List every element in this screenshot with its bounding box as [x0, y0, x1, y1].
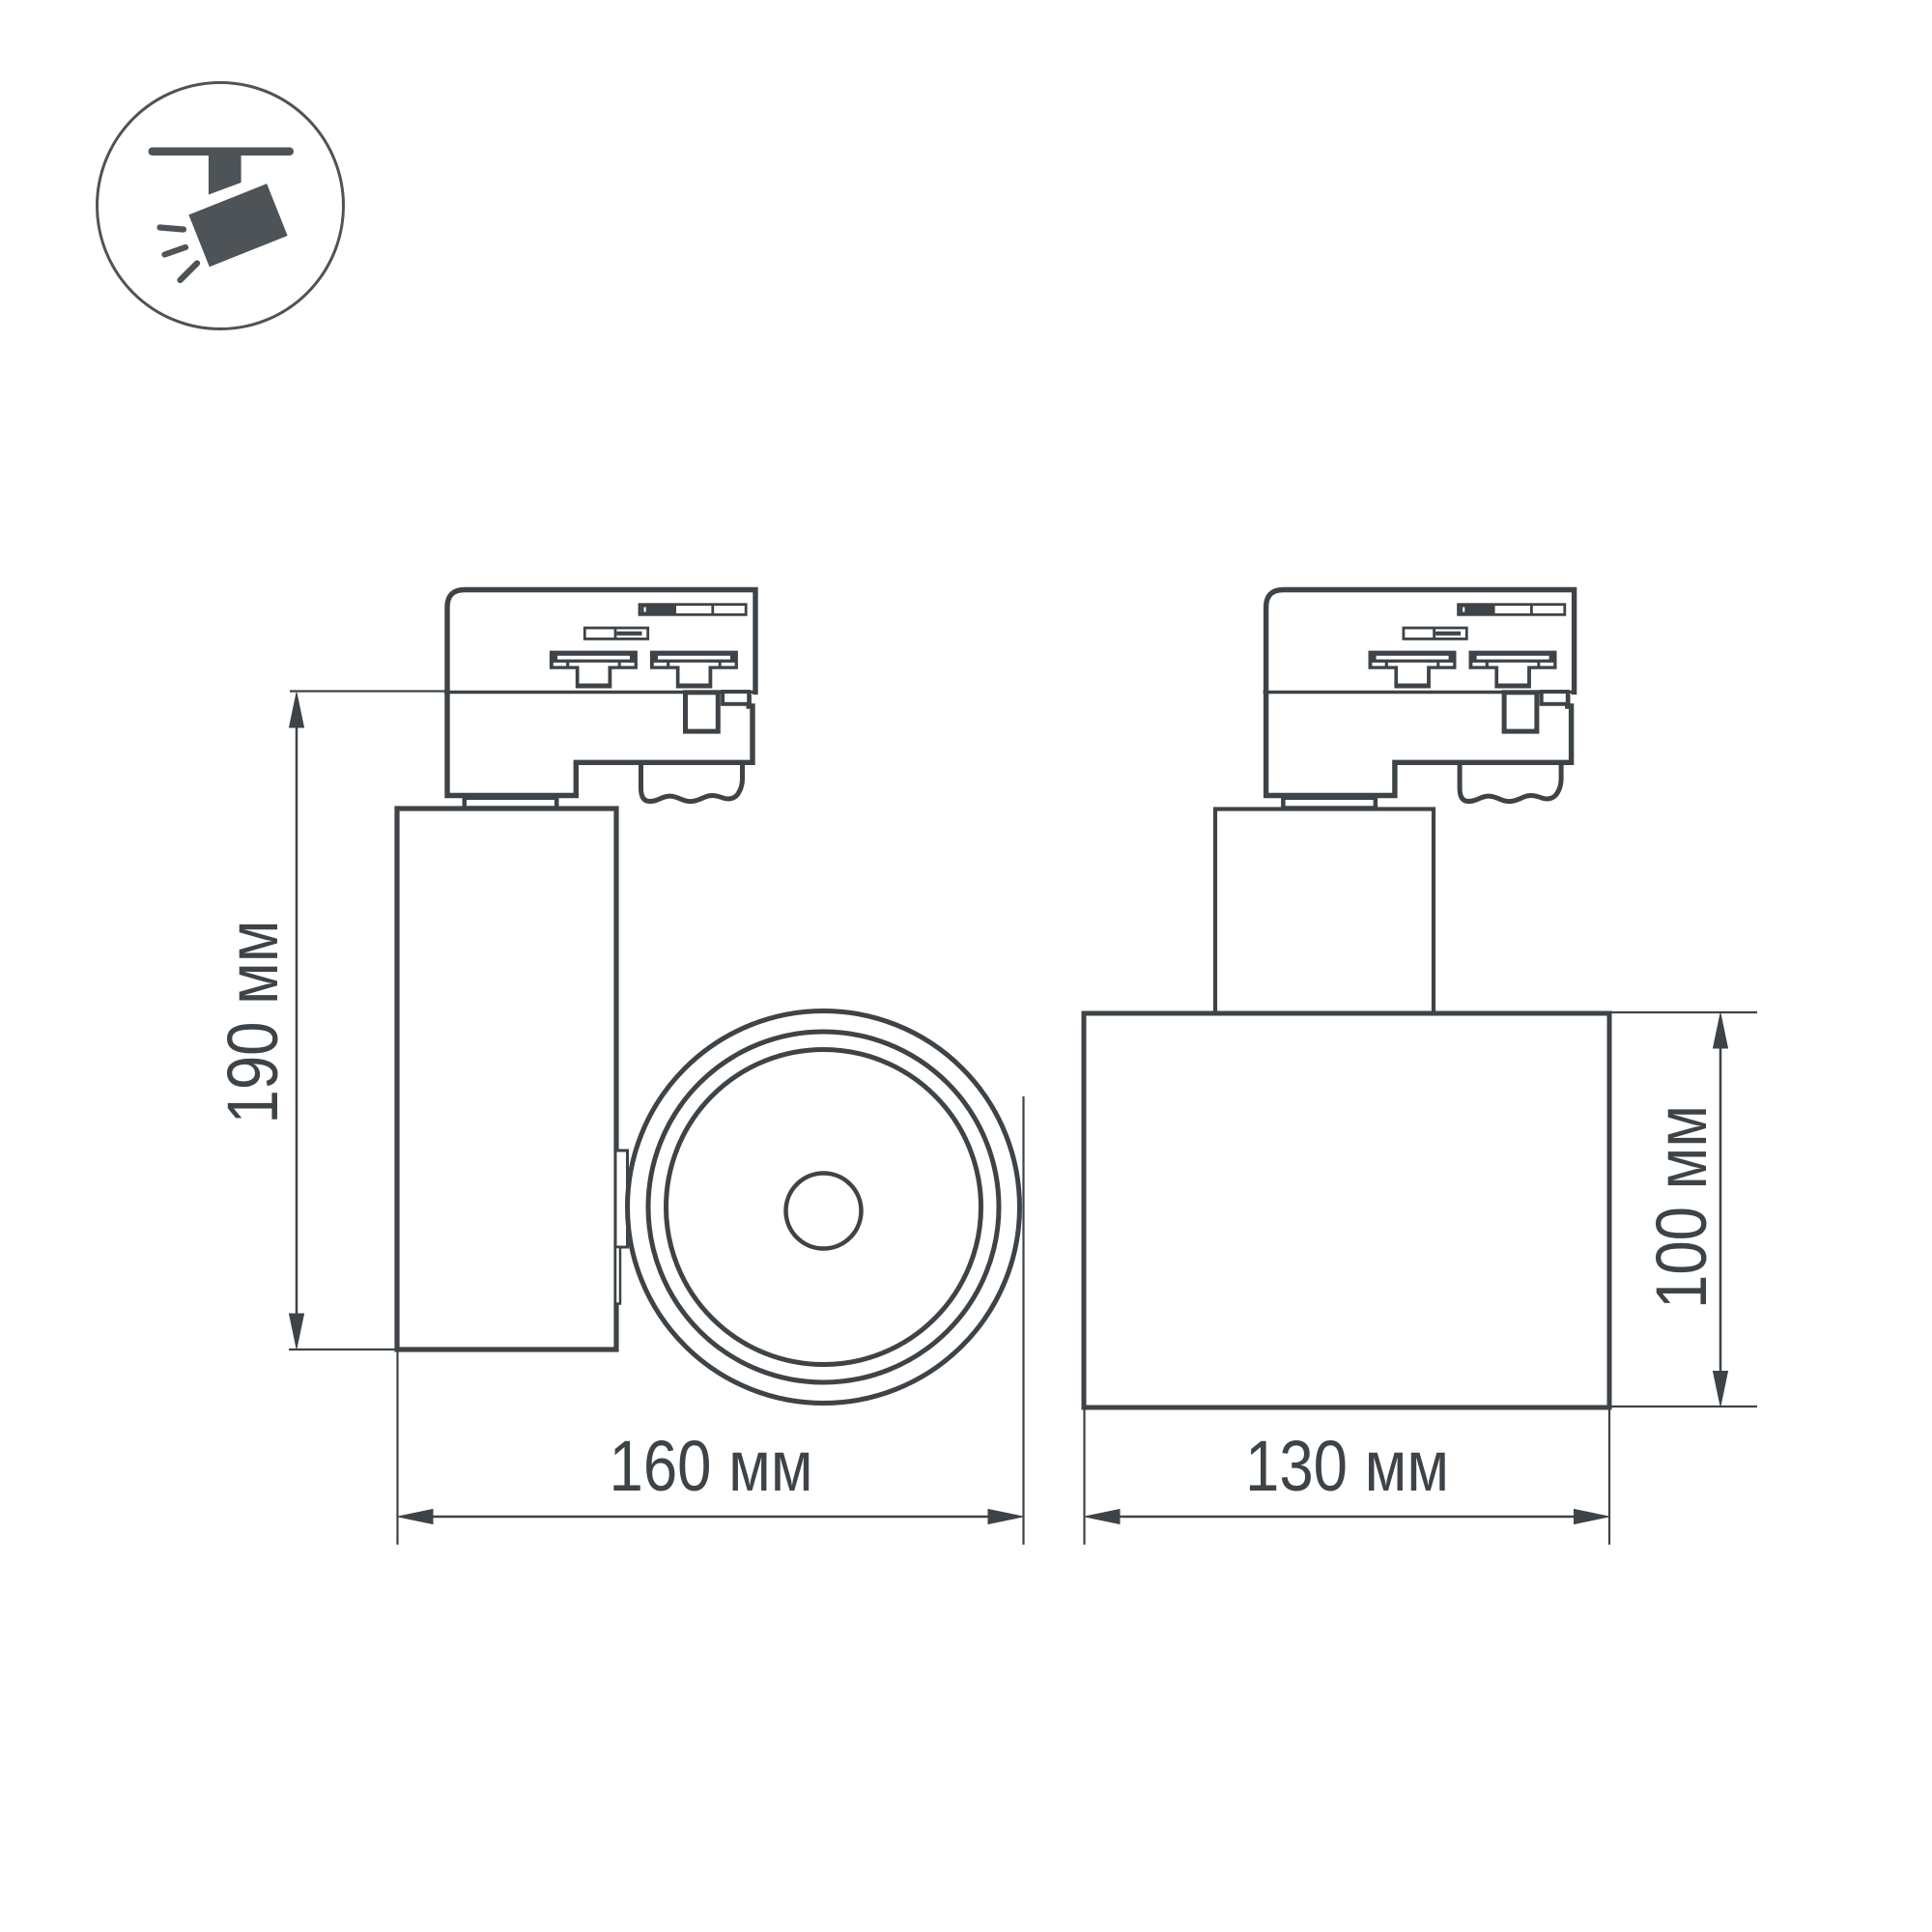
svg-text:100 мм: 100 мм [1641, 1105, 1721, 1309]
svg-text:160 мм: 160 мм [610, 1426, 813, 1506]
svg-text:130 мм: 130 мм [1245, 1426, 1449, 1506]
svg-text:190 мм: 190 мм [213, 921, 293, 1124]
